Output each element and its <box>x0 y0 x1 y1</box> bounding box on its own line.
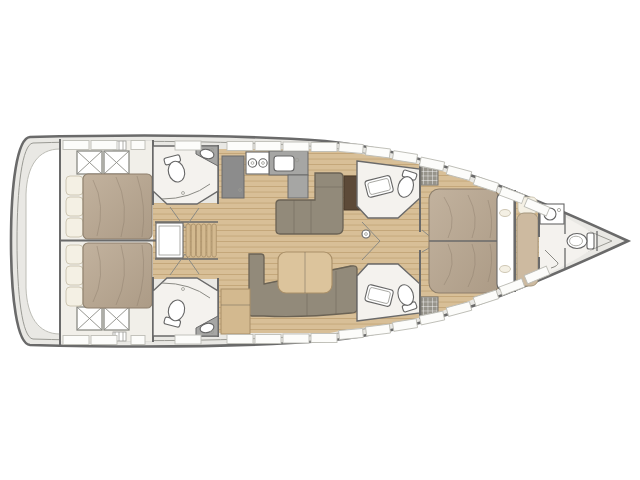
deck-locker <box>63 141 89 150</box>
pillow <box>66 245 83 264</box>
head-cushion <box>500 266 511 273</box>
deck-locker <box>131 336 145 345</box>
deck-locker <box>175 335 201 344</box>
galley-counter-leg <box>288 175 308 198</box>
deck-locker <box>91 141 117 150</box>
double-bed-aft-starboard <box>83 243 152 308</box>
head-cushion <box>500 210 511 217</box>
stair-tread <box>207 224 211 257</box>
pillow <box>66 197 83 216</box>
pillow <box>66 176 83 195</box>
pillow <box>66 266 83 285</box>
burner-icon <box>259 159 267 167</box>
stair-tread <box>212 224 216 257</box>
deck-locker <box>63 336 89 345</box>
stair-tread <box>186 224 190 257</box>
deck-locker <box>91 336 117 345</box>
bed-head-shelf <box>497 193 514 290</box>
deck-locker <box>227 335 253 344</box>
pillow <box>66 287 83 306</box>
deck-locker <box>227 142 253 151</box>
fridge <box>222 156 244 198</box>
yacht-floorplan <box>0 0 640 480</box>
deck-locker <box>175 141 201 150</box>
aft-cabin-port <box>61 141 153 240</box>
deck-locker <box>255 335 281 344</box>
deck-locker <box>311 143 337 152</box>
toilet-tank-icon <box>587 233 594 249</box>
yacht-floorplan-page <box>0 0 640 480</box>
double-bed-aft-port <box>83 174 152 239</box>
deck-locker <box>339 142 364 153</box>
stair-tread <box>196 224 200 257</box>
deck-locker <box>311 334 337 343</box>
deck-locker <box>255 142 281 151</box>
toilet-icon <box>567 234 587 249</box>
companionway-stairs <box>156 223 216 258</box>
galley-sink-icon <box>274 156 294 171</box>
deck-locker <box>339 328 364 339</box>
stern-platform <box>26 149 60 334</box>
engine-compartment <box>156 223 183 258</box>
stair-tread <box>202 224 206 257</box>
deck-locker <box>283 334 309 343</box>
pillow <box>66 218 83 237</box>
salon-cabinet <box>221 289 250 334</box>
mast-post-icon <box>362 230 370 238</box>
bow-toilet <box>567 233 594 249</box>
deck-locker <box>283 142 309 151</box>
burner-icon <box>248 159 256 167</box>
deck-locker <box>131 141 145 150</box>
aft-cabin-starboard <box>61 242 153 341</box>
stair-tread <box>191 224 195 257</box>
